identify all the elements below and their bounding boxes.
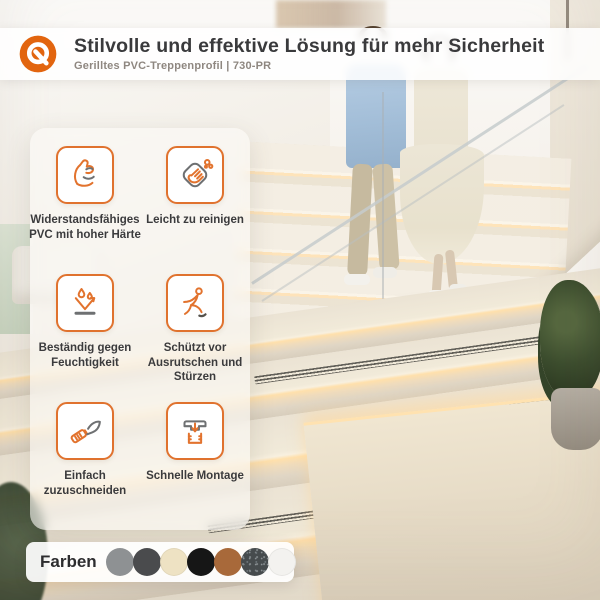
feature-item: Schnelle Montage (140, 394, 250, 522)
cleaning-wipe-icon (166, 146, 224, 204)
man-shoe (344, 274, 370, 285)
color-swatch (160, 548, 188, 576)
page-title: Stilvolle und effektive Lösung für mehr … (74, 36, 545, 57)
feature-label: Leicht zu reinigen (136, 213, 254, 228)
water-repellent-icon (56, 274, 114, 332)
page-subtitle: Gerilltes PVC-Treppenprofil | 730-PR (74, 60, 545, 72)
color-swatch (214, 548, 242, 576)
product-image: Stilvolle und effektive Lösung für mehr … (0, 0, 600, 600)
features-panel: Widerstandsfähiges PVC mit hoher Härte L… (30, 128, 250, 530)
header-text: Stilvolle und effektive Lösung für mehr … (74, 36, 545, 72)
muscle-arm-icon (56, 146, 114, 204)
brand-logo (18, 34, 58, 74)
man-leg (372, 163, 399, 270)
feature-item: Leicht zu reinigen (140, 138, 250, 266)
feature-item: Einfach zuzuschneiden (30, 394, 140, 522)
colors-label: Farben (40, 552, 97, 572)
feature-label: Widerstandsfähiges PVC mit hoher Härte (26, 213, 144, 242)
header-bar: Stilvolle und effektive Lösung für mehr … (0, 28, 600, 80)
feature-label: Schützt vor Ausrutschen und Stürzen (136, 341, 254, 385)
glass-panel-edge (382, 92, 384, 302)
color-swatch (133, 548, 161, 576)
color-swatch (241, 548, 269, 576)
q-ring-logo-icon (18, 34, 58, 74)
feature-label: Schnelle Montage (136, 469, 254, 484)
color-swatch (106, 548, 134, 576)
quick-montage-icon (166, 402, 224, 460)
plant-pot (551, 388, 600, 450)
color-swatch (187, 548, 215, 576)
feature-item: Schützt vor Ausrutschen und Stürzen (140, 266, 250, 394)
feature-item: Beständig gegen Feuchtigkeit (30, 266, 140, 394)
colors-bar: Farben (26, 542, 294, 582)
plant-leaves (540, 280, 600, 400)
slip-protection-icon (166, 274, 224, 332)
color-swatch (268, 548, 296, 576)
feature-label: Beständig gegen Feuchtigkeit (26, 341, 144, 370)
feature-label: Einfach zuzuschneiden (26, 469, 144, 498)
color-swatches (106, 548, 295, 576)
feature-item: Widerstandsfähiges PVC mit hoher Härte (30, 138, 140, 266)
cutter-knife-icon (56, 402, 114, 460)
wood-ceiling-detail (276, 0, 386, 28)
man-shoe (373, 267, 397, 278)
